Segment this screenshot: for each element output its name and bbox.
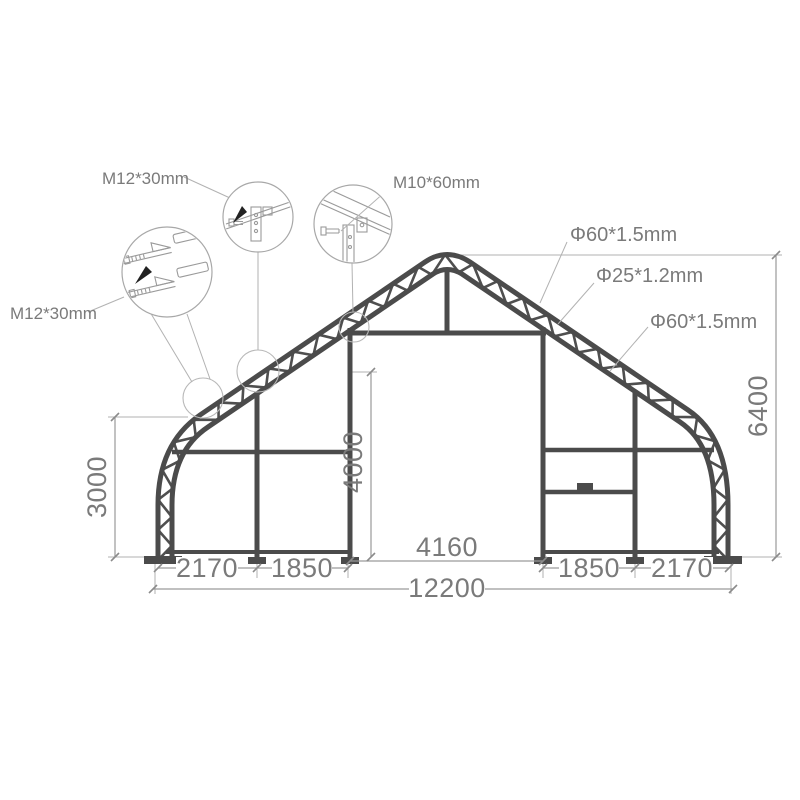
callout-outer-chord-tube: Φ60*1.5mm	[570, 224, 677, 246]
dim-door-width: 4160	[416, 532, 478, 562]
dim-total-width: 12200	[408, 573, 486, 603]
dim-right-mid-bay: 1850	[558, 553, 620, 583]
callout-post-bolt: M10*60mm	[393, 173, 480, 192]
dim-left-mid-bay: 1850	[271, 553, 333, 583]
foot-pad	[248, 557, 266, 564]
dim-door-height: 4000	[338, 431, 368, 493]
dim-left-bay: 2170	[176, 553, 238, 583]
girt-bracket	[577, 483, 593, 491]
truss-web-lacing	[158, 255, 728, 560]
truss-arch	[158, 255, 728, 561]
callout-inner-chord-tube: Φ60*1.5mm	[650, 311, 757, 333]
callout-splice-bolt: M12*30mm	[10, 304, 97, 323]
dim-side-height: 3000	[82, 456, 112, 518]
detail-circle-splice	[122, 227, 212, 317]
callout-girt-bolt: M12*30mm	[102, 169, 189, 188]
drawing-svg: 2170 1850 4160 1850 2170 12200 3000 4000…	[0, 0, 800, 800]
dim-right-bay: 2170	[651, 553, 713, 583]
truss-outer-chord	[158, 255, 728, 561]
callout-web-tube: Φ25*1.2mm	[596, 265, 703, 287]
detail-circle-post	[314, 185, 392, 263]
foot-pad	[626, 557, 644, 564]
shelter-frame-drawing: 2170 1850 4160 1850 2170 12200 3000 4000…	[0, 0, 800, 800]
dim-ridge-height: 6400	[743, 375, 773, 437]
